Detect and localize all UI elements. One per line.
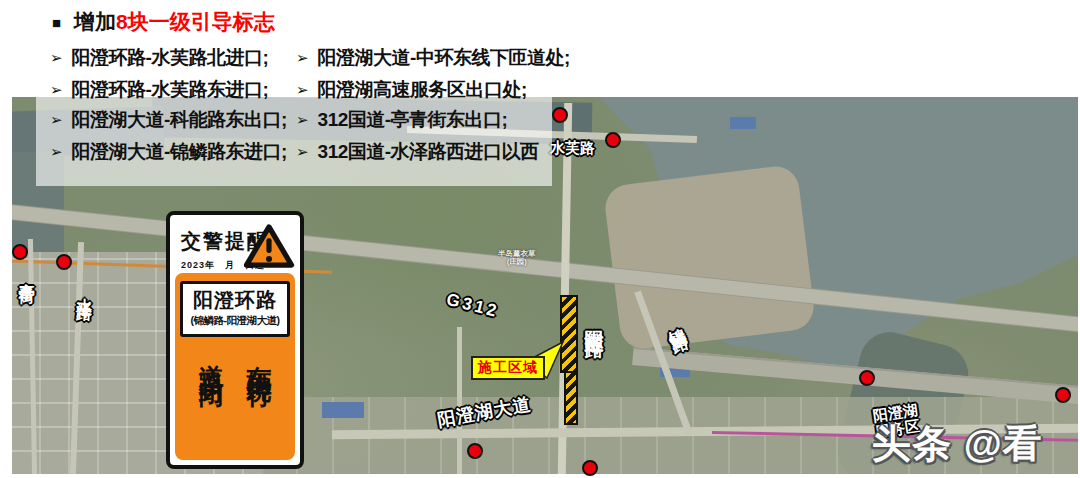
label-tingqing-street: 亭青街 — [18, 269, 35, 278]
label-shuize-road: 水泽路 — [76, 285, 93, 295]
header-block: ■ 增加 8块一级引导标志 ➢ 阳澄环路-水芙路北进口; ➢ 阳澄环路-水芙路东… — [0, 0, 1080, 190]
title-highlight: 8块一级引导标志 — [116, 8, 275, 36]
guide-item-3: ➢ 阳澄湖大道-科能路东出口; — [50, 107, 287, 133]
sign-road-section: (锦鳞路-阳澄湖大道) — [183, 314, 287, 328]
label-yangcheng-ring-road: 阳澄环路 — [584, 315, 604, 327]
arrow-bullet-icon: ➢ — [296, 143, 309, 161]
arrow-bullet-icon: ➢ — [50, 49, 63, 67]
label-lavender-park: 半岛薰衣草 (庄园) — [498, 250, 536, 266]
guide-item-1: ➢ 阳澄环路-水芙路北进口; — [50, 45, 268, 71]
guide-item-8: ➢ 312国道-水泽路西进口以西 — [296, 139, 539, 165]
road-closure-infographic: 施工区域 水芙路 G312 阳澄环路 锦鳞路 阳澄湖大道 亭青街 水泽路 阳澄湖… — [0, 0, 1080, 478]
sign-message-right: 车辆绕行 — [247, 345, 272, 456]
guide-item-6: ➢ 阳澄湖高速服务区出口处; — [296, 77, 527, 103]
guide-item-2: ➢ 阳澄环路-水芙路东进口; — [50, 77, 268, 103]
label-g312: G312 — [445, 291, 501, 321]
sign-message: 道路封闭 车辆绕行 — [175, 345, 295, 456]
sign-road-box: 阳澄环路 (锦鳞路-阳澄湖大道) — [180, 281, 290, 337]
arrow-bullet-icon: ➢ — [296, 111, 309, 129]
page-title: ■ 增加 8块一级引导标志 — [52, 8, 275, 36]
arrow-bullet-icon: ➢ — [296, 81, 309, 99]
sign-orange-area: 阳澄环路 (锦鳞路-阳澄湖大道) 道路封闭 车辆绕行 — [175, 273, 295, 460]
arrow-bullet-icon: ➢ — [296, 49, 309, 67]
road-keneng — [457, 327, 462, 474]
resort-complex — [603, 164, 817, 352]
watermark-toutiao: 头条 @看苏州 — [872, 417, 1078, 474]
sign-message-left: 道路封闭 — [199, 345, 224, 456]
guide-item-7: ➢ 312国道-亭青街东出口; — [296, 107, 507, 133]
building — [322, 402, 364, 418]
sign-road-name: 阳澄环路 — [183, 287, 287, 314]
square-bullet-icon: ■ — [52, 14, 61, 31]
arrow-bullet-icon: ➢ — [50, 81, 63, 99]
guide-item-5: ➢ 阳澄湖大道-中环东线下匝道处; — [296, 45, 570, 71]
warning-triangle-icon — [243, 223, 295, 269]
traffic-notice-sign: 交警提醒 2023年 月 日起 阳澄环路 (锦鳞路-阳澄湖大道) 道路封闭 车辆… — [166, 211, 304, 469]
guide-item-4: ➢ 阳澄湖大道-锦鳞路东进口; — [50, 139, 287, 165]
arrow-bullet-icon: ➢ — [50, 143, 63, 161]
arrow-bullet-icon: ➢ — [50, 111, 63, 129]
title-prefix: 增加 — [74, 8, 116, 36]
construction-area-tag: 施工区域 — [471, 356, 545, 380]
